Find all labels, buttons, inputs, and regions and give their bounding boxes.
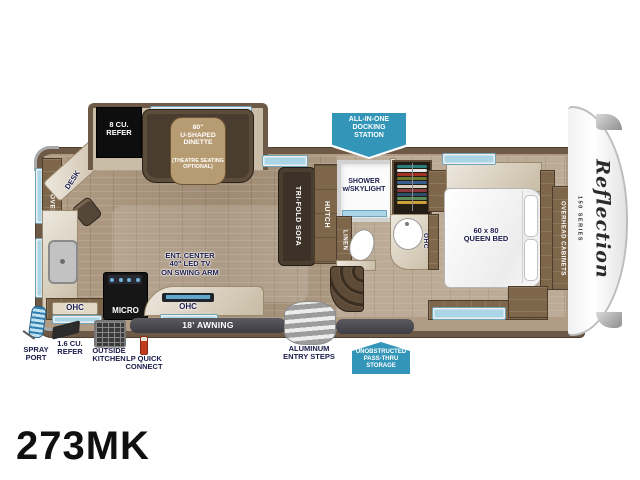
entry-steps-label: ALUMINUM ENTRY STEPS	[276, 345, 342, 362]
shower-label: SHOWER w/SKYLIGHT	[337, 178, 391, 194]
range-burners	[108, 275, 142, 284]
model-number: 273MK	[16, 424, 150, 469]
vanity-faucet	[405, 222, 409, 226]
reflection-logo-series: 150 SERIES	[577, 196, 583, 242]
window-living	[262, 155, 308, 167]
awning-bar: 18' AWNING	[130, 318, 286, 333]
passthru-bar	[336, 319, 414, 334]
range-stove: MICRO	[103, 272, 148, 320]
micro-label: MICRO	[104, 307, 147, 316]
docking-station-badge-inner: ALL-IN-ONE DOCKING STATION	[332, 113, 406, 157]
linen-label: LINEN	[337, 217, 351, 263]
tri-fold-sofa: TRI-FOLD SOFA	[278, 167, 316, 266]
kitchen-sink	[48, 240, 78, 284]
cap-trim-top	[596, 114, 622, 130]
reflection-logo-script: Reflection	[592, 159, 614, 278]
front-cap: Reflection 150 SERIES	[568, 106, 628, 336]
tv-screen	[166, 295, 210, 299]
vanity-cabinet	[428, 214, 439, 270]
wardrobe-rod	[412, 163, 413, 211]
shower: SHOWER w/SKYLIGHT	[337, 160, 398, 222]
wardrobe	[392, 160, 432, 216]
dinette-label: 80" U-SHAPED DINETTE	[163, 124, 233, 147]
window-bedroom-bottom	[432, 307, 506, 320]
bedroom-corner-cabinet	[508, 286, 548, 318]
lp-quick-connect-label: LP QUICK CONNECT	[122, 355, 166, 372]
tri-fold-sofa-label: TRI-FOLD SOFA	[279, 168, 315, 265]
hutch-label: HUTCH	[315, 165, 337, 263]
awning-label: 18' AWNING	[130, 321, 286, 331]
refrigerator-label: 8 CU. REFER	[97, 121, 141, 138]
tv	[162, 293, 214, 302]
dinette-note-label: (THEATRE SEATING OPTIONAL)	[159, 158, 237, 170]
queen-bed: 60 x 80 QUEEN BED	[444, 188, 542, 288]
refrigerator: 8 CU. REFER	[96, 107, 142, 158]
bed-label: 60 x 80 QUEEN BED	[453, 227, 519, 244]
reflection-logo: Reflection 150 SERIES	[574, 134, 614, 304]
bed-pillow-bottom	[524, 239, 538, 281]
bed-pillow-top	[524, 195, 538, 237]
passthru-storage-badge: UNOBSTRUCTED PASS-THRU STORAGE	[350, 340, 412, 376]
passthru-storage-badge-inner: UNOBSTRUCTED PASS-THRU STORAGE	[352, 342, 410, 374]
cap-trim-bottom	[596, 312, 622, 328]
floorplan-canvas: OVERHEAD CABINETS DESK OHC MICRO OHC ENT…	[0, 0, 640, 480]
interior-steps	[330, 266, 364, 312]
window-bedroom-top	[442, 153, 496, 165]
ohc-label-left: OHC	[52, 302, 98, 315]
kitchen-faucet	[60, 259, 65, 264]
dinette-table: 80" U-SHAPED DINETTE (THEATRE SEATING OP…	[170, 117, 226, 185]
entry-steps	[284, 301, 336, 345]
ent-center-label: ENT. CENTER 40" LED TV ON SWING ARM	[140, 252, 240, 277]
linen-closet: LINEN	[336, 216, 352, 264]
ohc-label-right: OHC	[166, 303, 210, 312]
bed-fold-line	[522, 191, 523, 283]
outside-refer-label: 1.6 CU. REFER	[48, 340, 92, 357]
lp-quick-connect-icon	[140, 336, 148, 355]
outside-kitchen-icon	[94, 320, 126, 348]
hutch: HUTCH	[314, 164, 338, 264]
